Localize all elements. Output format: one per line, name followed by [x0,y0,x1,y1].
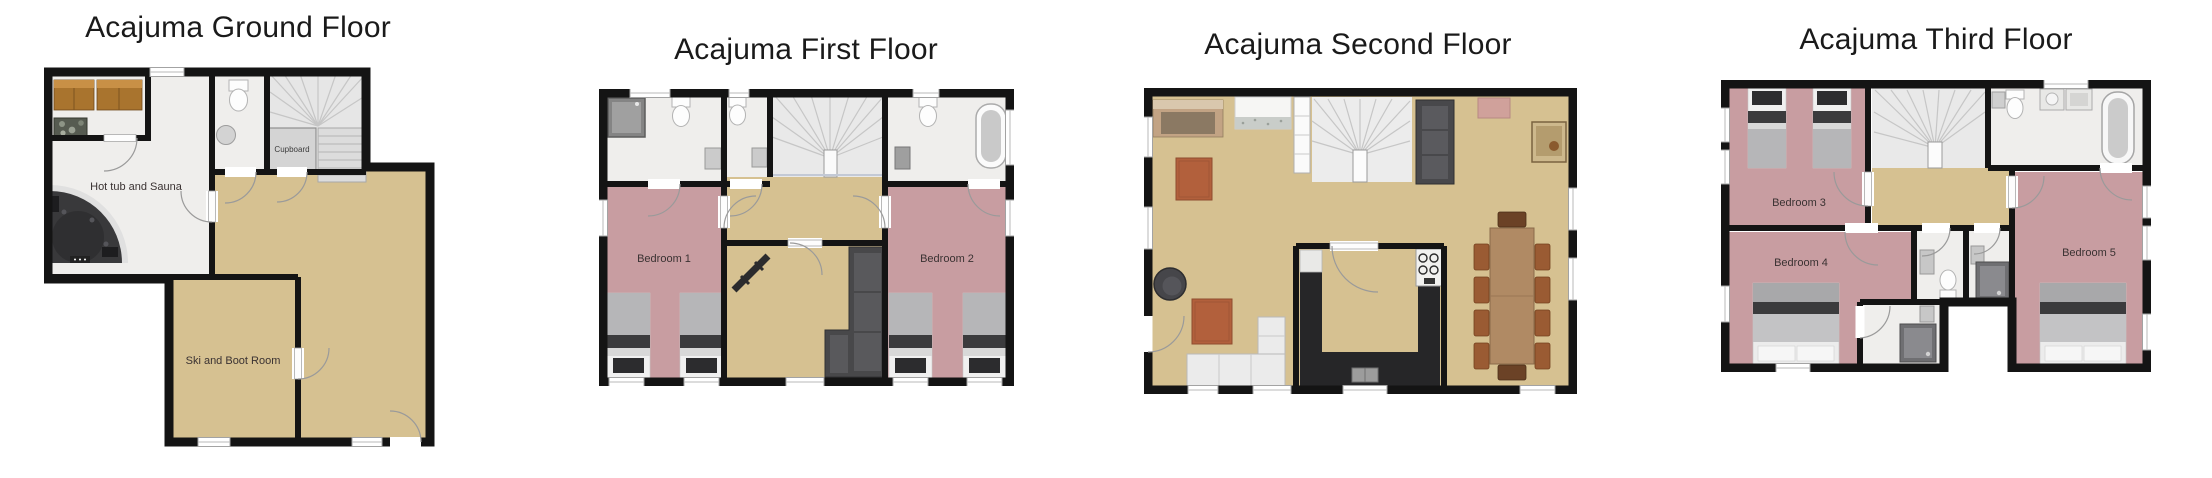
second-floor-plan [1144,88,1577,399]
sink-icon [1971,246,1984,264]
washer-icon [2040,89,2092,110]
toilet-icon [672,97,690,127]
open-room-floor [298,167,430,442]
bookshelf-icon [1294,97,1310,173]
toilet-icon [919,97,937,127]
room-label-bedroom-1: Bedroom 1 [637,253,691,265]
rug-icon [1192,299,1232,344]
armchair-icon [1154,268,1186,300]
sink-icon [1920,250,1934,274]
first-floor-plan: Bedroom 1 Bedroom 2 [599,89,1014,391]
rug-icon [1176,158,1212,200]
sauna-bench-icon [54,80,142,110]
shower-icon [608,98,645,137]
sofa-icon [1416,100,1454,184]
shower-tray-icon [1900,324,1936,362]
landing-floor [1872,168,2012,228]
ground-floor-svg: Hot tub and Sauna Cupboard Ski and Boot … [44,64,436,450]
bed-icon [1748,88,1786,168]
room-label-bedroom-5: Bedroom 5 [2062,247,2116,259]
toilet-icon [1940,270,1956,298]
ground-floor-plan: Hot tub and Sauna Cupboard Ski and Boot … [44,64,436,455]
dining-table-icon [1490,228,1534,364]
bed-icon [963,293,1006,378]
hallway-floor [212,172,298,277]
sink-icon [705,148,721,169]
room-label-bedroom-2: Bedroom 2 [920,253,974,265]
third-floor-svg: Bedroom 3 Bedroom 4 Bedroom 5 [1721,80,2151,372]
room-label-cupboard: Cupboard [274,145,309,154]
bathtub-icon [2102,92,2134,164]
kitchen-sink-icon [1352,368,1378,382]
sink-icon [1920,306,1934,322]
counter-icon [1235,97,1291,129]
bed-icon [1813,88,1851,168]
sink-icon [1992,92,2005,108]
room-label-bedroom-3: Bedroom 3 [1772,197,1826,209]
bathtub-icon [976,104,1006,168]
floor-title-first: Acajuma First Floor [606,33,1006,67]
double-bed-icon [1753,283,1839,364]
room-label-bedroom-4: Bedroom 4 [1774,257,1828,269]
bed-icon [680,293,723,378]
fireplace-icon [1532,122,1566,162]
sink-icon [895,147,910,169]
second-floor-svg [1144,88,1577,394]
room-label-ski-boot: Ski and Boot Room [186,355,281,367]
floor-title-ground: Acajuma Ground Floor [38,11,438,45]
floor-title-third: Acajuma Third Floor [1736,23,2136,57]
spiral-stairs-icon [1312,97,1412,182]
bench-icon [1153,100,1223,137]
bed-icon [889,293,932,378]
toilet-icon [729,97,746,125]
floor-title-second: Acajuma Second Floor [1158,28,1558,62]
toilet-icon [229,80,248,111]
third-floor-plan: Bedroom 3 Bedroom 4 Bedroom 5 [1721,80,2151,377]
side-table-icon [1478,98,1510,118]
shower-tray-icon [1976,262,2009,300]
sink-icon [752,148,767,167]
room-label-hot-tub-sauna: Hot tub and Sauna [90,181,183,193]
bed-icon [607,293,650,378]
first-floor-svg: Bedroom 1 Bedroom 2 [599,89,1014,386]
toilet-icon [2006,90,2024,119]
floorplans-canvas: Acajuma Ground Floor Acajuma First Floor… [0,0,2212,478]
double-bed-icon [2040,283,2126,364]
exterior-notch [1944,302,2012,368]
sink-icon [217,126,236,145]
stove-icon [1416,249,1443,286]
